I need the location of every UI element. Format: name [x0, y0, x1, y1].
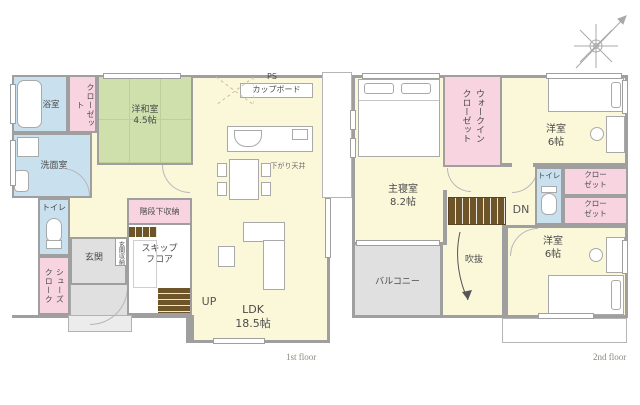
pantry-dashed-icon [216, 77, 254, 105]
ldk-name: LDK [242, 303, 264, 316]
window [350, 110, 356, 130]
coffee-table-icon [218, 246, 235, 267]
washing-machine-icon [17, 137, 39, 157]
up-label: UP [196, 295, 222, 309]
sofa-icon [243, 222, 285, 242]
floor2-label: 2nd floor [593, 352, 626, 362]
room-japanese-label: 洋和室 4.5帖 [113, 105, 177, 128]
floor2-roof-outline-bottom [502, 318, 627, 343]
entrance-storage-label: 玄関収納 [117, 240, 125, 265]
dn-label: DN [508, 203, 534, 217]
master-bedroom-name: 主寝室 [388, 184, 418, 195]
room-shoes-closet-label: シューズクローク [43, 268, 65, 304]
washbasin-icon [14, 170, 29, 192]
compass-icon [558, 6, 640, 82]
ldk-size: 18.5帖 [235, 317, 271, 330]
dining-chair-icon [217, 182, 227, 196]
bedroom-north-size: 6帖 [548, 137, 564, 148]
pillow-icon [611, 280, 621, 310]
toilet-icon-1f [46, 218, 62, 242]
desk-icon [606, 116, 625, 153]
room-closet-b-label: クローゼット [582, 199, 609, 219]
master-hall-wall [443, 190, 447, 245]
window [10, 140, 16, 186]
kitchen-stove-icon [292, 129, 308, 140]
window [350, 138, 356, 158]
window [538, 313, 594, 319]
pillow-icon [401, 83, 431, 94]
under-stair-storage-label: 階段下収納 [129, 207, 190, 217]
master-bedroom-label: 主寝室 8.2帖 [372, 184, 434, 209]
toilet-icon-2f [541, 193, 557, 215]
skip-floor-step-lines [133, 240, 157, 288]
ldk-label: LDK 18.5帖 [222, 303, 284, 331]
window [325, 198, 331, 258]
room-bathroom-label: 浴室 [36, 100, 66, 111]
floor1-label: 1st floor [286, 352, 316, 362]
room-closet-1f-label: クローゼット [75, 79, 95, 131]
ldk-left-wall [190, 315, 194, 343]
lowered-ceiling-label: 下がり天井 [264, 162, 312, 171]
balcony-sliding-window [356, 240, 440, 246]
window [362, 73, 440, 79]
window [622, 240, 628, 274]
toilet-tank-icon-1f [46, 240, 62, 249]
master-bedroom-size: 8.2帖 [390, 197, 416, 208]
room-toilet-2f-label: トイレ [533, 171, 565, 180]
room-closet-a-label: クローゼット [582, 170, 609, 190]
window [213, 338, 265, 344]
walk-in-closet-label: ウォークインクローゼット [458, 87, 485, 145]
desk-chair-icon [589, 248, 603, 262]
ps-label: PS [262, 72, 282, 82]
bedroom-south-top-wall [508, 225, 628, 228]
room-entrance-label: 玄関 [74, 253, 114, 264]
room-japanese-size: 4.5帖 [133, 116, 156, 126]
bedroom-south-name: 洋室 [543, 236, 563, 247]
dining-chair-icon [261, 163, 271, 177]
window [103, 73, 181, 79]
bed-fold-line [359, 100, 439, 101]
desk-chair-icon [590, 127, 604, 141]
stairs-down [448, 197, 506, 225]
floor-plan-canvas: 浴室 クローゼット 洗面室 洋和室 4.5帖 トイレ シューズクローク 玄関 玄… [0, 0, 640, 405]
stairs-up-bottom [158, 288, 190, 313]
stair-direction-arrow [450, 228, 490, 313]
pillow-icon [364, 83, 394, 94]
dining-chair-icon [261, 182, 271, 196]
window [10, 84, 16, 124]
room-toilet-1f-label: トイレ [38, 203, 70, 213]
toilet-tank-icon-2f [541, 186, 557, 193]
stairs-up-top [129, 227, 157, 237]
floor2-roof-outline-left [322, 72, 352, 198]
sofa-icon [263, 240, 285, 290]
bedroom-north-label: 洋室 6帖 [530, 124, 582, 149]
room-balcony-label: バルコニー [360, 277, 435, 288]
room-japanese-name: 洋和室 [131, 105, 158, 115]
bedroom-south-size: 6帖 [545, 249, 561, 260]
bedroom-north-name: 洋室 [546, 124, 566, 135]
bedroom-north-bottom-wall [502, 163, 512, 167]
dining-table-icon [229, 159, 259, 200]
pillow-icon [611, 82, 621, 108]
dining-chair-icon [217, 163, 227, 177]
void-right-wall [502, 225, 508, 318]
window [622, 80, 628, 114]
